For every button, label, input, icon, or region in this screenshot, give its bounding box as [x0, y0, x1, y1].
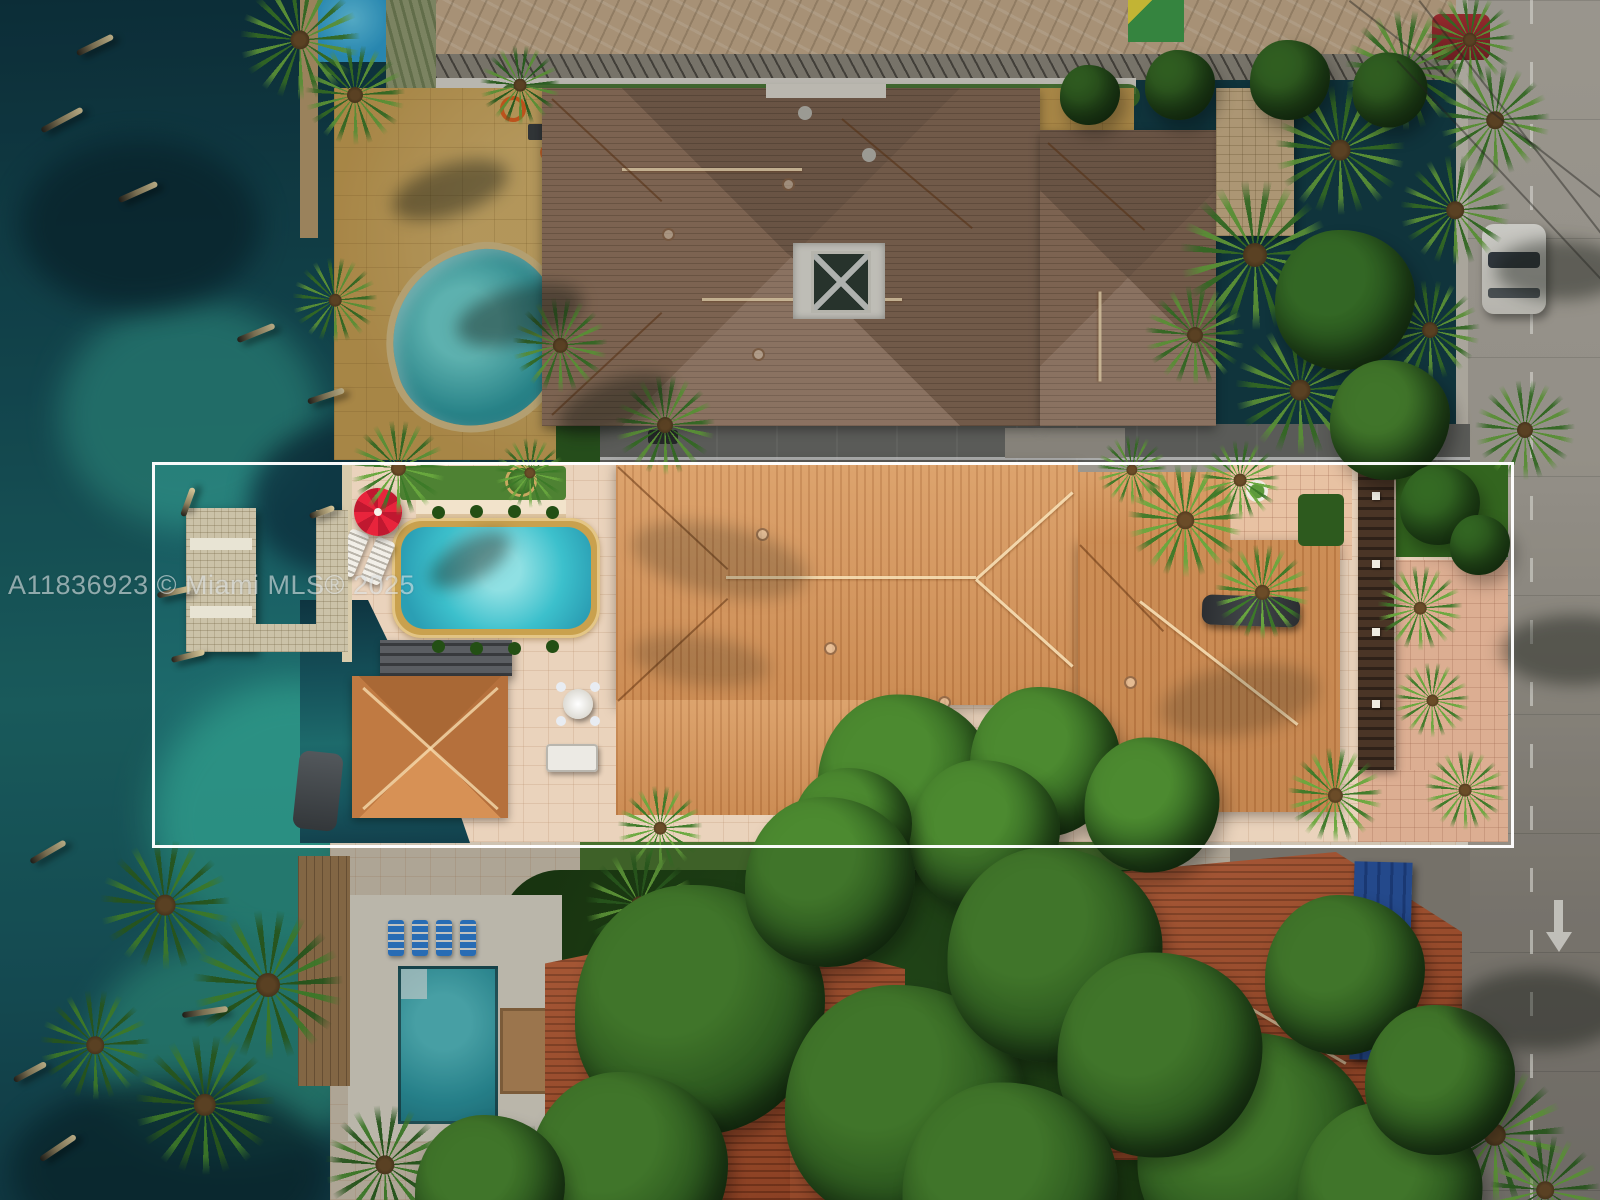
satellite-dish — [862, 148, 876, 162]
trash-bins — [648, 430, 678, 444]
teak-lounge-pad — [500, 1008, 550, 1094]
aerial-photo: A11836923 © Miami MLS® 2025 — [0, 0, 1600, 1200]
road-arrow-marking — [1546, 900, 1572, 966]
alley-hedge — [556, 424, 600, 462]
life-ring — [500, 96, 526, 122]
blue-lounger — [460, 920, 476, 956]
bottom-courtyard-gap — [848, 1010, 938, 1088]
blue-lounger — [412, 920, 428, 956]
windshield — [1488, 252, 1540, 268]
concrete-pad — [1005, 428, 1125, 458]
water-patch — [20, 140, 260, 310]
bottom-dock — [298, 856, 350, 1086]
alley — [596, 424, 1470, 462]
construction-forms — [436, 54, 1466, 80]
parapet-wall — [766, 84, 886, 98]
blue-lounger — [436, 920, 452, 956]
construction-lot — [436, 0, 1466, 58]
blue-lounger — [388, 920, 404, 956]
palm-tree — [1275, 85, 1405, 215]
arrow-head — [1546, 932, 1572, 952]
top-house-roof-annex — [1040, 130, 1216, 426]
property-highlight-box — [152, 462, 1514, 848]
bottom-roof-left-wing — [790, 1090, 1000, 1200]
lane-marking — [1530, 0, 1533, 1200]
shore-wall — [300, 0, 318, 238]
pool-steps — [401, 969, 427, 999]
arrow-stem — [1554, 900, 1563, 934]
bottom-pool — [398, 966, 498, 1124]
top-house-roof — [542, 88, 1040, 426]
rear-window — [1488, 288, 1540, 298]
neighbor-pool — [318, 0, 386, 62]
green-tarp — [1128, 0, 1184, 42]
tree-canopy — [1275, 230, 1415, 370]
satellite-dish — [798, 106, 812, 120]
white-car — [1482, 224, 1546, 314]
stone-privacy-wall — [1216, 88, 1294, 236]
watermark: A11836923 © Miami MLS® 2025 — [8, 570, 415, 601]
top-courtyard — [793, 243, 885, 319]
blue-container — [1349, 861, 1412, 1060]
skylight — [811, 251, 871, 313]
